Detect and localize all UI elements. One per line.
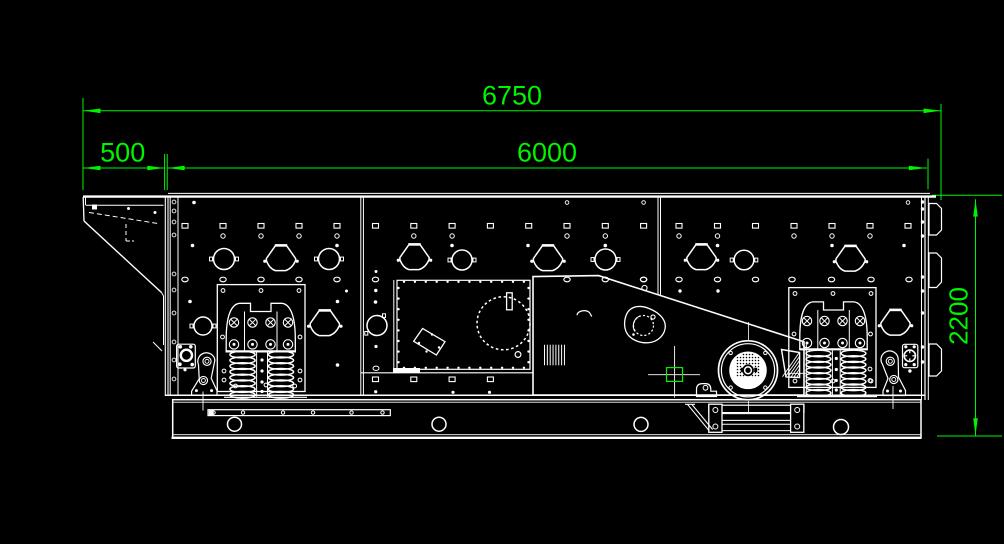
svg-text:6750: 6750: [482, 81, 542, 111]
svg-text:2200: 2200: [944, 287, 974, 345]
svg-text:6000: 6000: [517, 138, 577, 168]
svg-text:500: 500: [100, 138, 145, 168]
